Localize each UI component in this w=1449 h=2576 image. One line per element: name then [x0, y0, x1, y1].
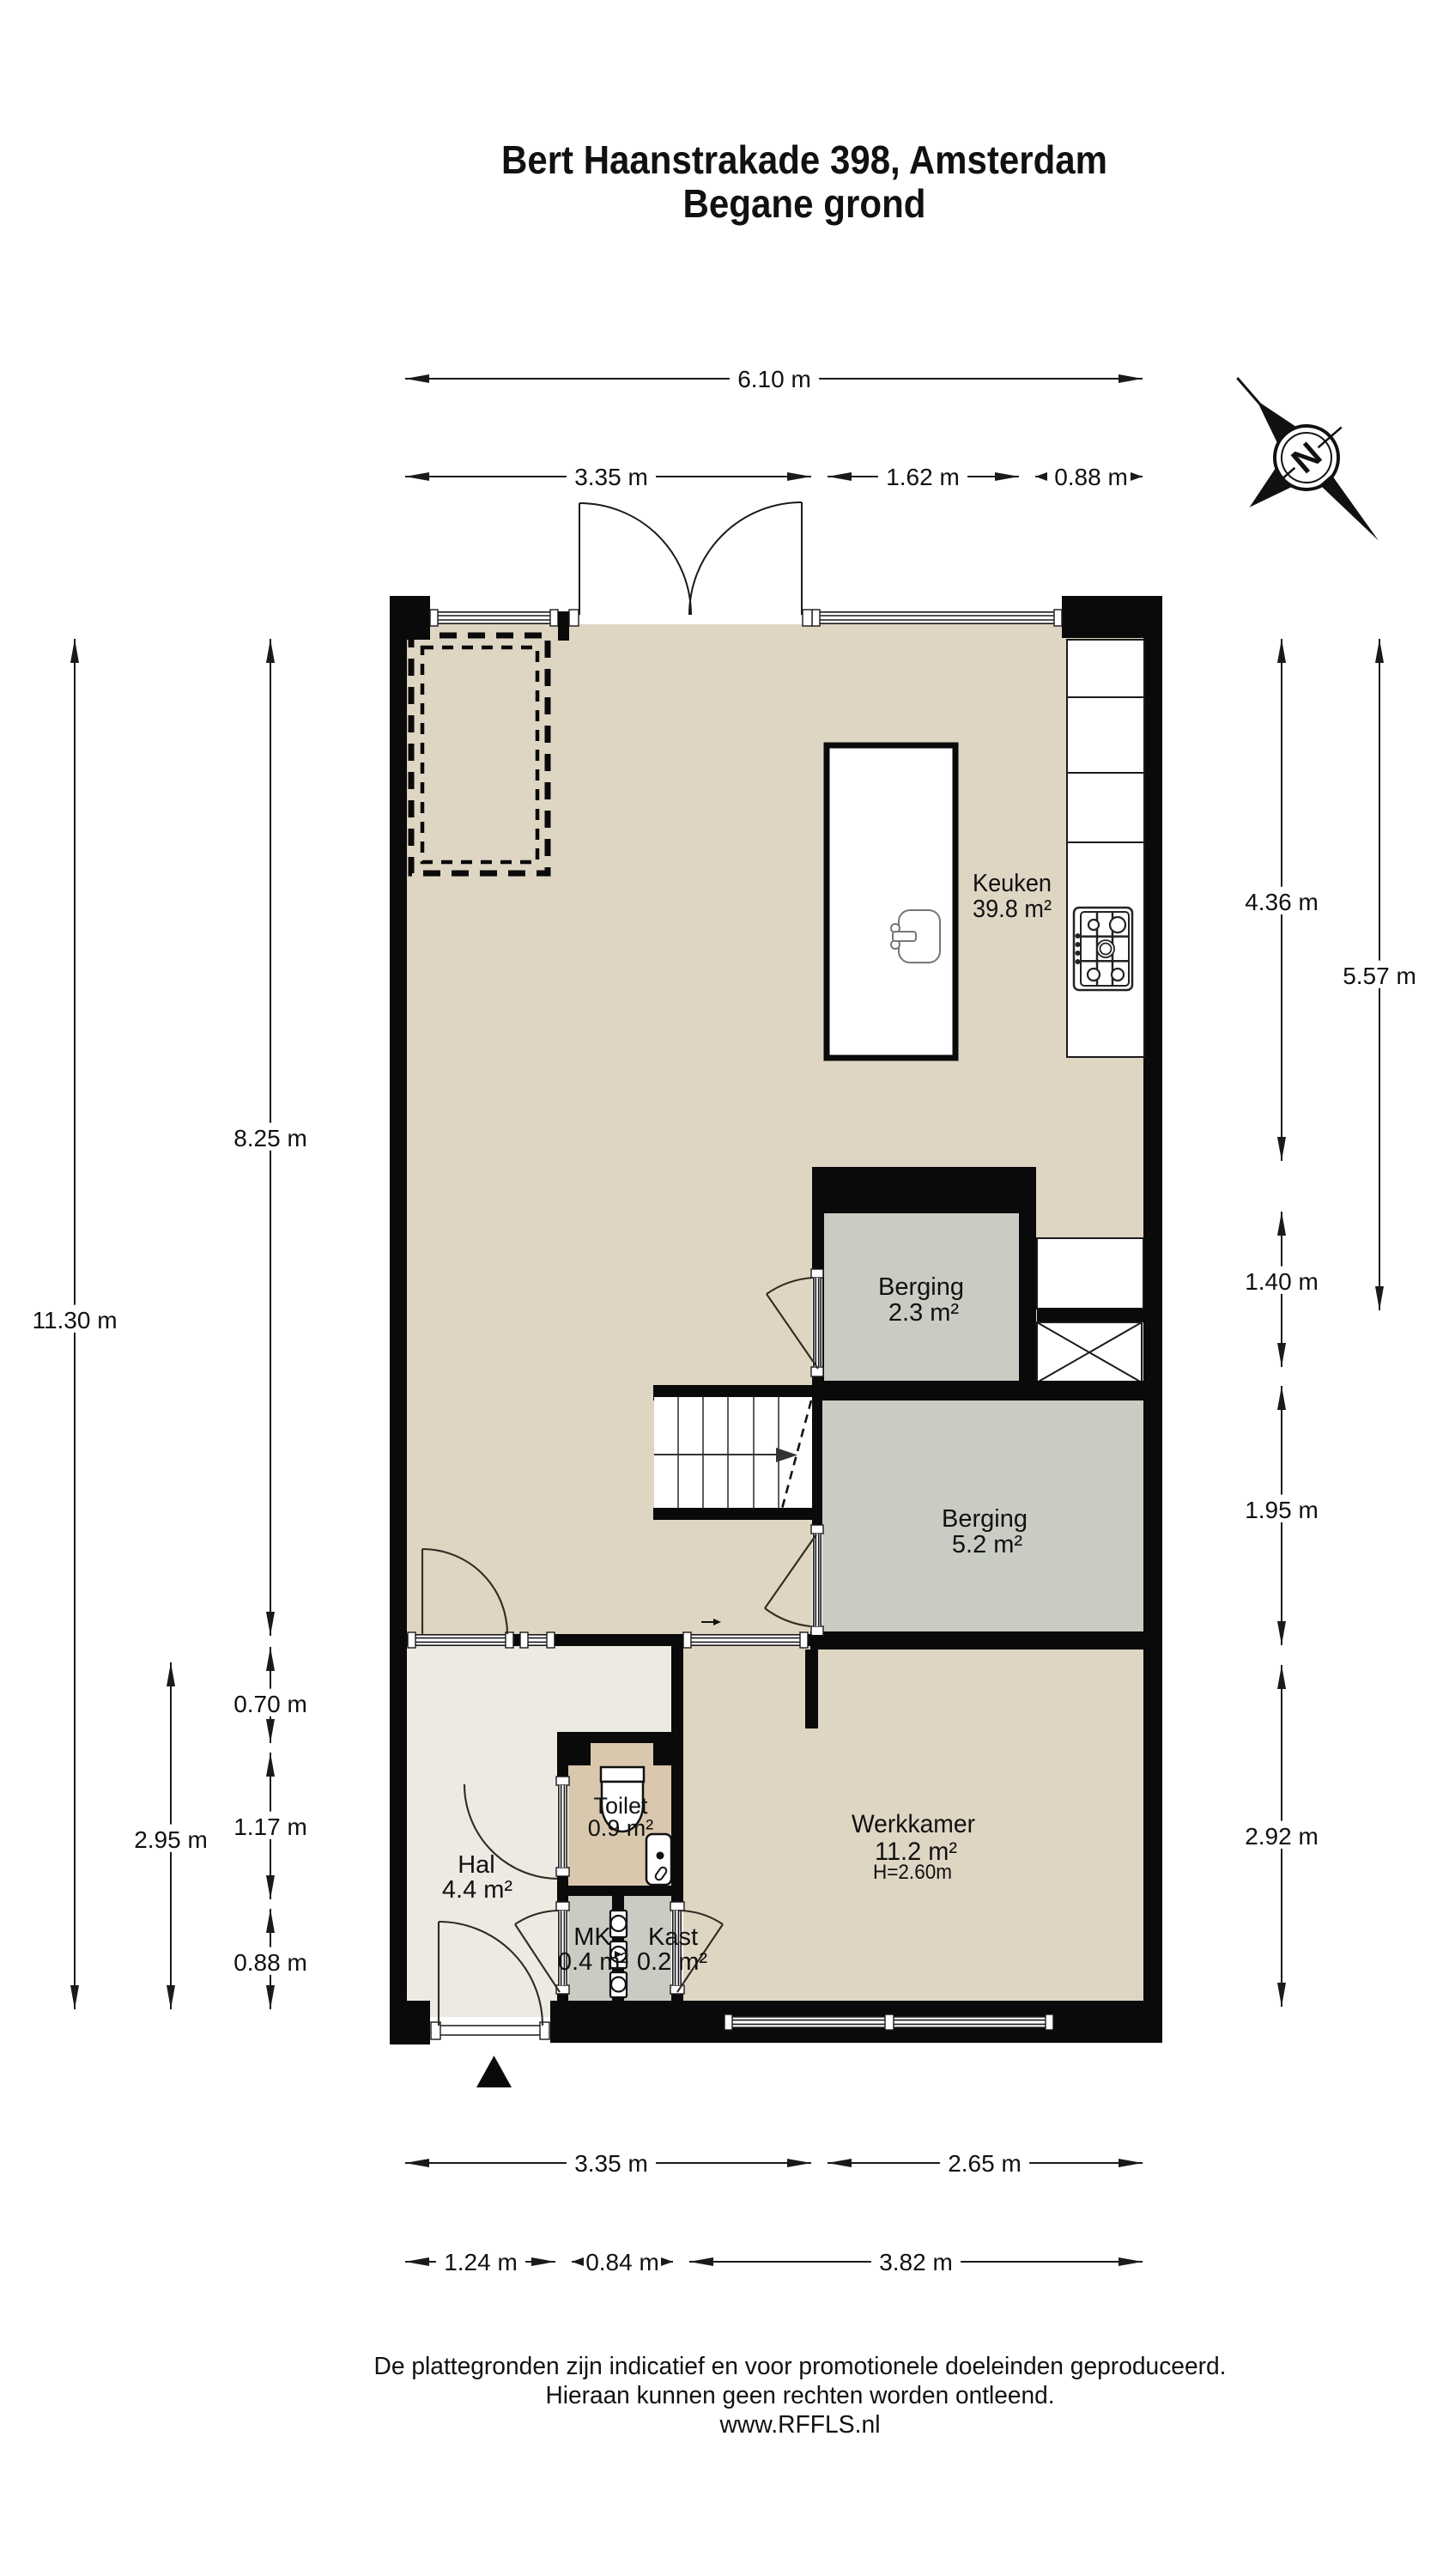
svg-text:MK: MK [573, 1923, 611, 1951]
svg-text:2.92 m: 2.92 m [1245, 1823, 1319, 1850]
svg-text:8.25 m: 8.25 m [233, 1125, 307, 1151]
svg-text:0.4 m²: 0.4 m² [558, 1948, 629, 1976]
svg-text:Bert Haanstrakade 398, Amsterd: Bert Haanstrakade 398, Amsterdam [501, 137, 1107, 182]
svg-text:0.88 m: 0.88 m [233, 1949, 307, 1976]
svg-text:0.88 m: 0.88 m [1054, 464, 1128, 490]
svg-text:0.2 m²: 0.2 m² [637, 1948, 708, 1976]
svg-text:4.36 m: 4.36 m [1245, 889, 1319, 915]
svg-text:3.35 m: 3.35 m [574, 2150, 648, 2177]
svg-text:2.95 m: 2.95 m [134, 1826, 208, 1853]
svg-text:2.3 m²: 2.3 m² [888, 1299, 960, 1327]
svg-text:4.4 m²: 4.4 m² [442, 1876, 513, 1904]
svg-text:1.62 m: 1.62 m [886, 464, 960, 490]
svg-text:Hal: Hal [458, 1851, 495, 1879]
svg-text:6.10 m: 6.10 m [737, 366, 811, 392]
svg-text:1.95 m: 1.95 m [1245, 1497, 1319, 1523]
svg-text:0.84 m: 0.84 m [585, 2249, 659, 2275]
svg-text:1.17 m: 1.17 m [233, 1814, 307, 1840]
svg-text:Berging: Berging [878, 1273, 964, 1301]
svg-text:11.30 m: 11.30 m [32, 1307, 117, 1334]
svg-text:5.57 m: 5.57 m [1343, 963, 1416, 989]
svg-text:De plattegronden zijn indicati: De plattegronden zijn indicatief en voor… [374, 2353, 1227, 2380]
svg-text:3.82 m: 3.82 m [879, 2249, 953, 2275]
svg-text:3.35 m: 3.35 m [574, 464, 648, 490]
svg-text:Werkkamer: Werkkamer [852, 1810, 975, 1838]
svg-text:0.9 m²: 0.9 m² [588, 1815, 654, 1841]
svg-text:Begane grond: Begane grond [683, 181, 926, 226]
svg-text:Berging: Berging [942, 1505, 1028, 1533]
svg-text:H=2.60m: H=2.60m [873, 1861, 952, 1884]
svg-text:2.65 m: 2.65 m [948, 2150, 1022, 2177]
svg-text:1.24 m: 1.24 m [444, 2249, 518, 2275]
svg-text:www.RFFLS.nl: www.RFFLS.nl [719, 2411, 881, 2439]
svg-text:Keuken: Keuken [973, 870, 1052, 897]
svg-text:0.70 m: 0.70 m [233, 1691, 307, 1717]
svg-text:39.8 m²: 39.8 m² [973, 896, 1052, 923]
svg-text:Kast: Kast [648, 1923, 698, 1951]
svg-text:5.2 m²: 5.2 m² [952, 1531, 1023, 1558]
svg-text:Hieraan kunnen geen rechten wo: Hieraan kunnen geen rechten worden ontle… [546, 2382, 1055, 2409]
svg-text:1.40 m: 1.40 m [1245, 1268, 1319, 1295]
